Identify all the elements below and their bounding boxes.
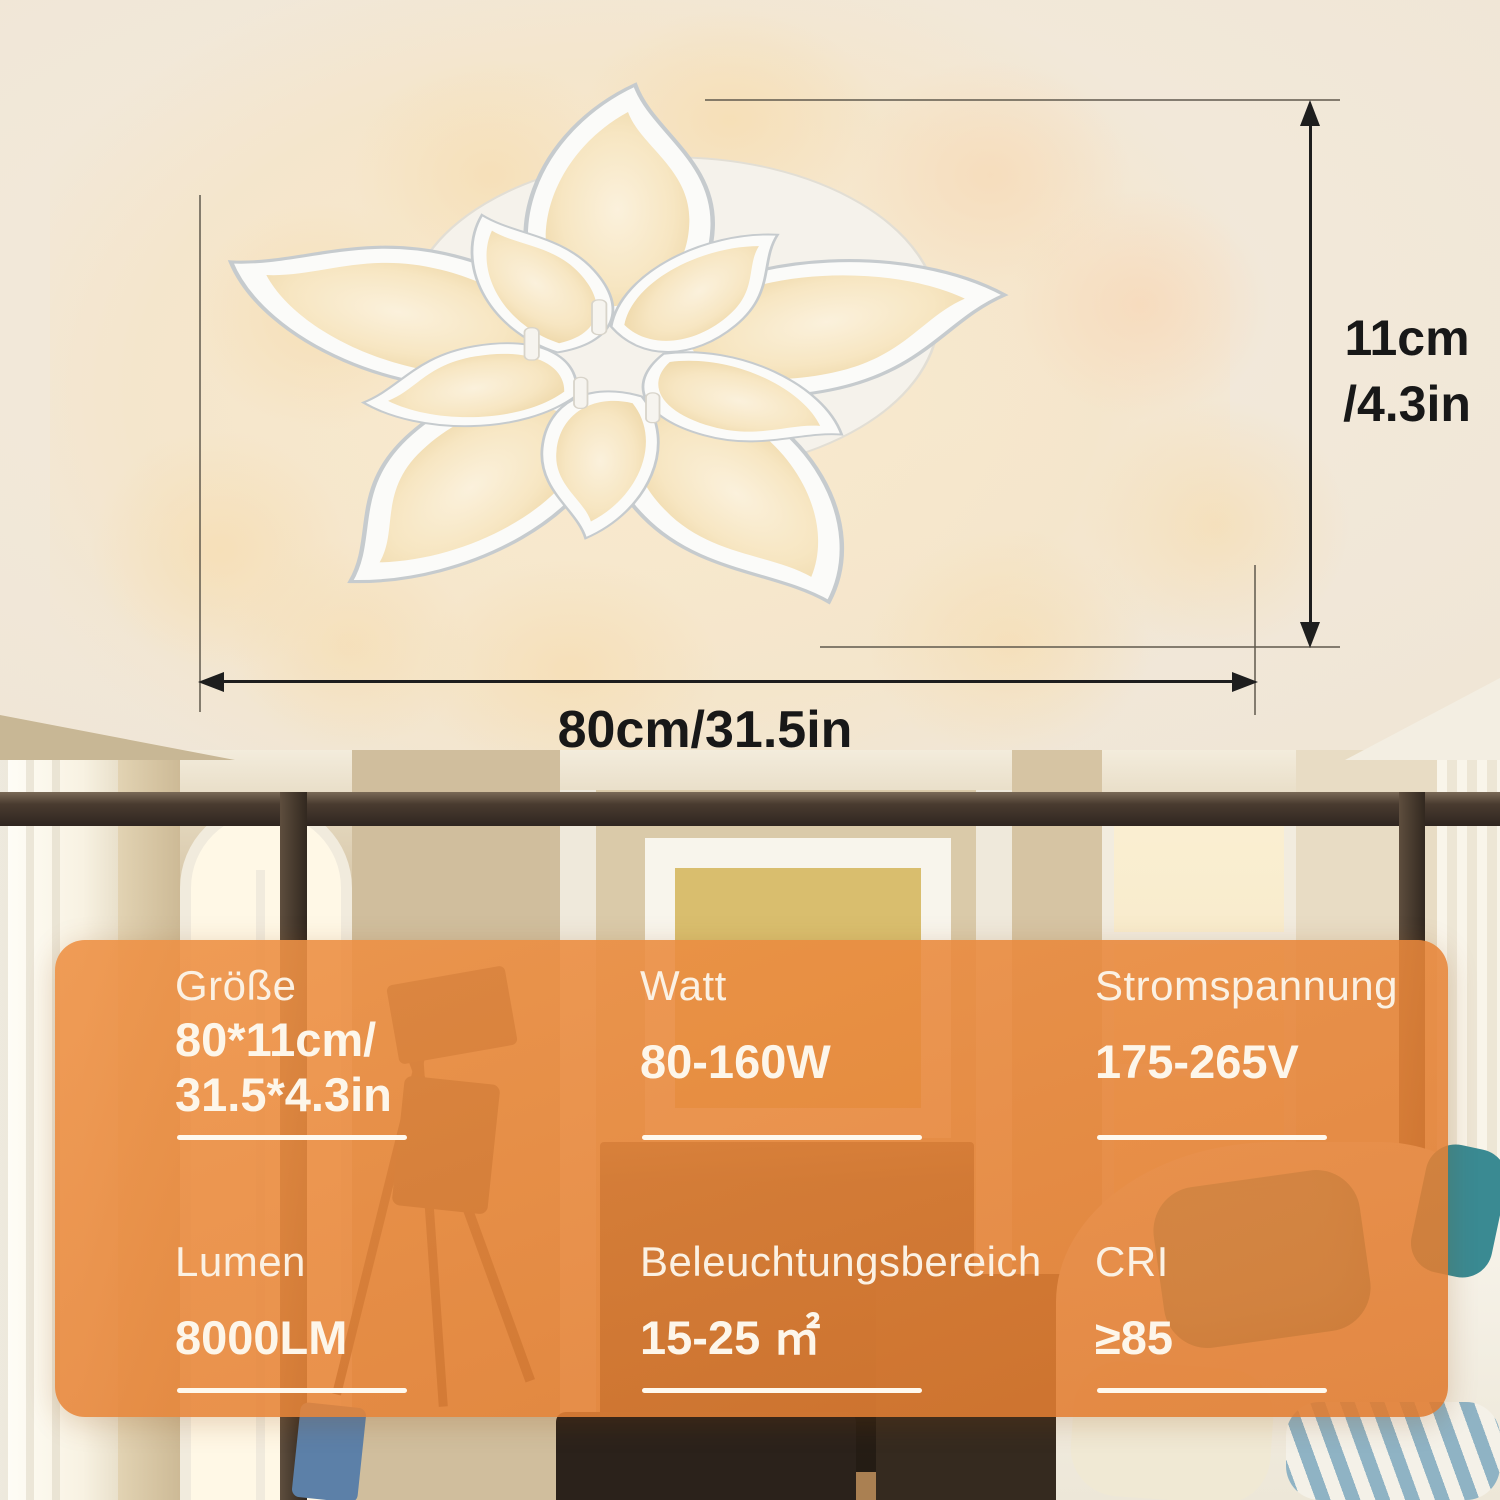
height-extension-line-bottom (820, 646, 1340, 648)
bed-canopy-bar (0, 792, 1500, 826)
arrow-left-icon (198, 672, 224, 692)
product-spec-image: 11cm /4.3in 80cm/31.5in (0, 0, 1500, 1500)
spec-value-groesse-line2: 31.5*4.3in (175, 1067, 392, 1122)
spec-value-beleuchtungsbereich: 15-25 ㎡ (640, 1310, 820, 1365)
spec-label-cri: CRI (1095, 1238, 1500, 1286)
spec-underline (1097, 1135, 1327, 1140)
spec-underline (642, 1388, 922, 1393)
spec-value-stromspannung: 175-265V (1095, 1034, 1299, 1089)
width-dimension-line (220, 680, 1238, 683)
height-dimension-cm: 11cm (1322, 305, 1492, 371)
arrow-up-icon (1300, 100, 1320, 126)
flower-ceiling-lamp (160, 55, 1060, 675)
spec-value-watt: 80-160W (640, 1034, 831, 1089)
spec-underline (1097, 1388, 1327, 1393)
spec-label-stromspannung: Stromspannung (1095, 962, 1500, 1010)
spec-cell-lumen: Lumen 8000LM (175, 1238, 615, 1448)
spec-underline (642, 1135, 922, 1140)
spec-underline (177, 1388, 407, 1393)
width-extension-line-left (199, 195, 201, 712)
spec-cell-beleuchtungsbereich: Beleuchtungsbereich 15-25 ㎡ (640, 1238, 1080, 1448)
arrow-right-icon (1232, 672, 1258, 692)
spec-panel: Größe 80*11cm/ 31.5*4.3in Watt 80-160W S… (55, 940, 1448, 1417)
spec-label-groesse: Größe (175, 962, 615, 1010)
width-extension-line-right (1254, 565, 1256, 715)
spec-cell-groesse: Größe 80*11cm/ 31.5*4.3in (175, 962, 615, 1172)
height-extension-line-top (705, 99, 1340, 101)
height-dimension-label: 11cm /4.3in (1322, 305, 1492, 437)
spec-value-groesse-line1: 80*11cm/ (175, 1012, 392, 1067)
spec-cell-cri: CRI ≥85 (1095, 1238, 1500, 1448)
spec-value-cri: ≥85 (1095, 1310, 1173, 1365)
spec-label-lumen: Lumen (175, 1238, 615, 1286)
height-dimension-in: /4.3in (1322, 371, 1492, 437)
spec-cell-watt: Watt 80-160W (640, 962, 1080, 1172)
spec-cell-stromspannung: Stromspannung 175-265V (1095, 962, 1500, 1172)
spec-value-lumen: 8000LM (175, 1310, 347, 1365)
spec-label-beleuchtungsbereich: Beleuchtungsbereich (640, 1238, 1080, 1286)
spec-label-watt: Watt (640, 962, 1080, 1010)
spec-underline (177, 1135, 407, 1140)
height-dimension-line (1309, 120, 1312, 628)
width-dimension-label: 80cm/31.5in (455, 700, 955, 760)
arrow-down-icon (1300, 622, 1320, 648)
